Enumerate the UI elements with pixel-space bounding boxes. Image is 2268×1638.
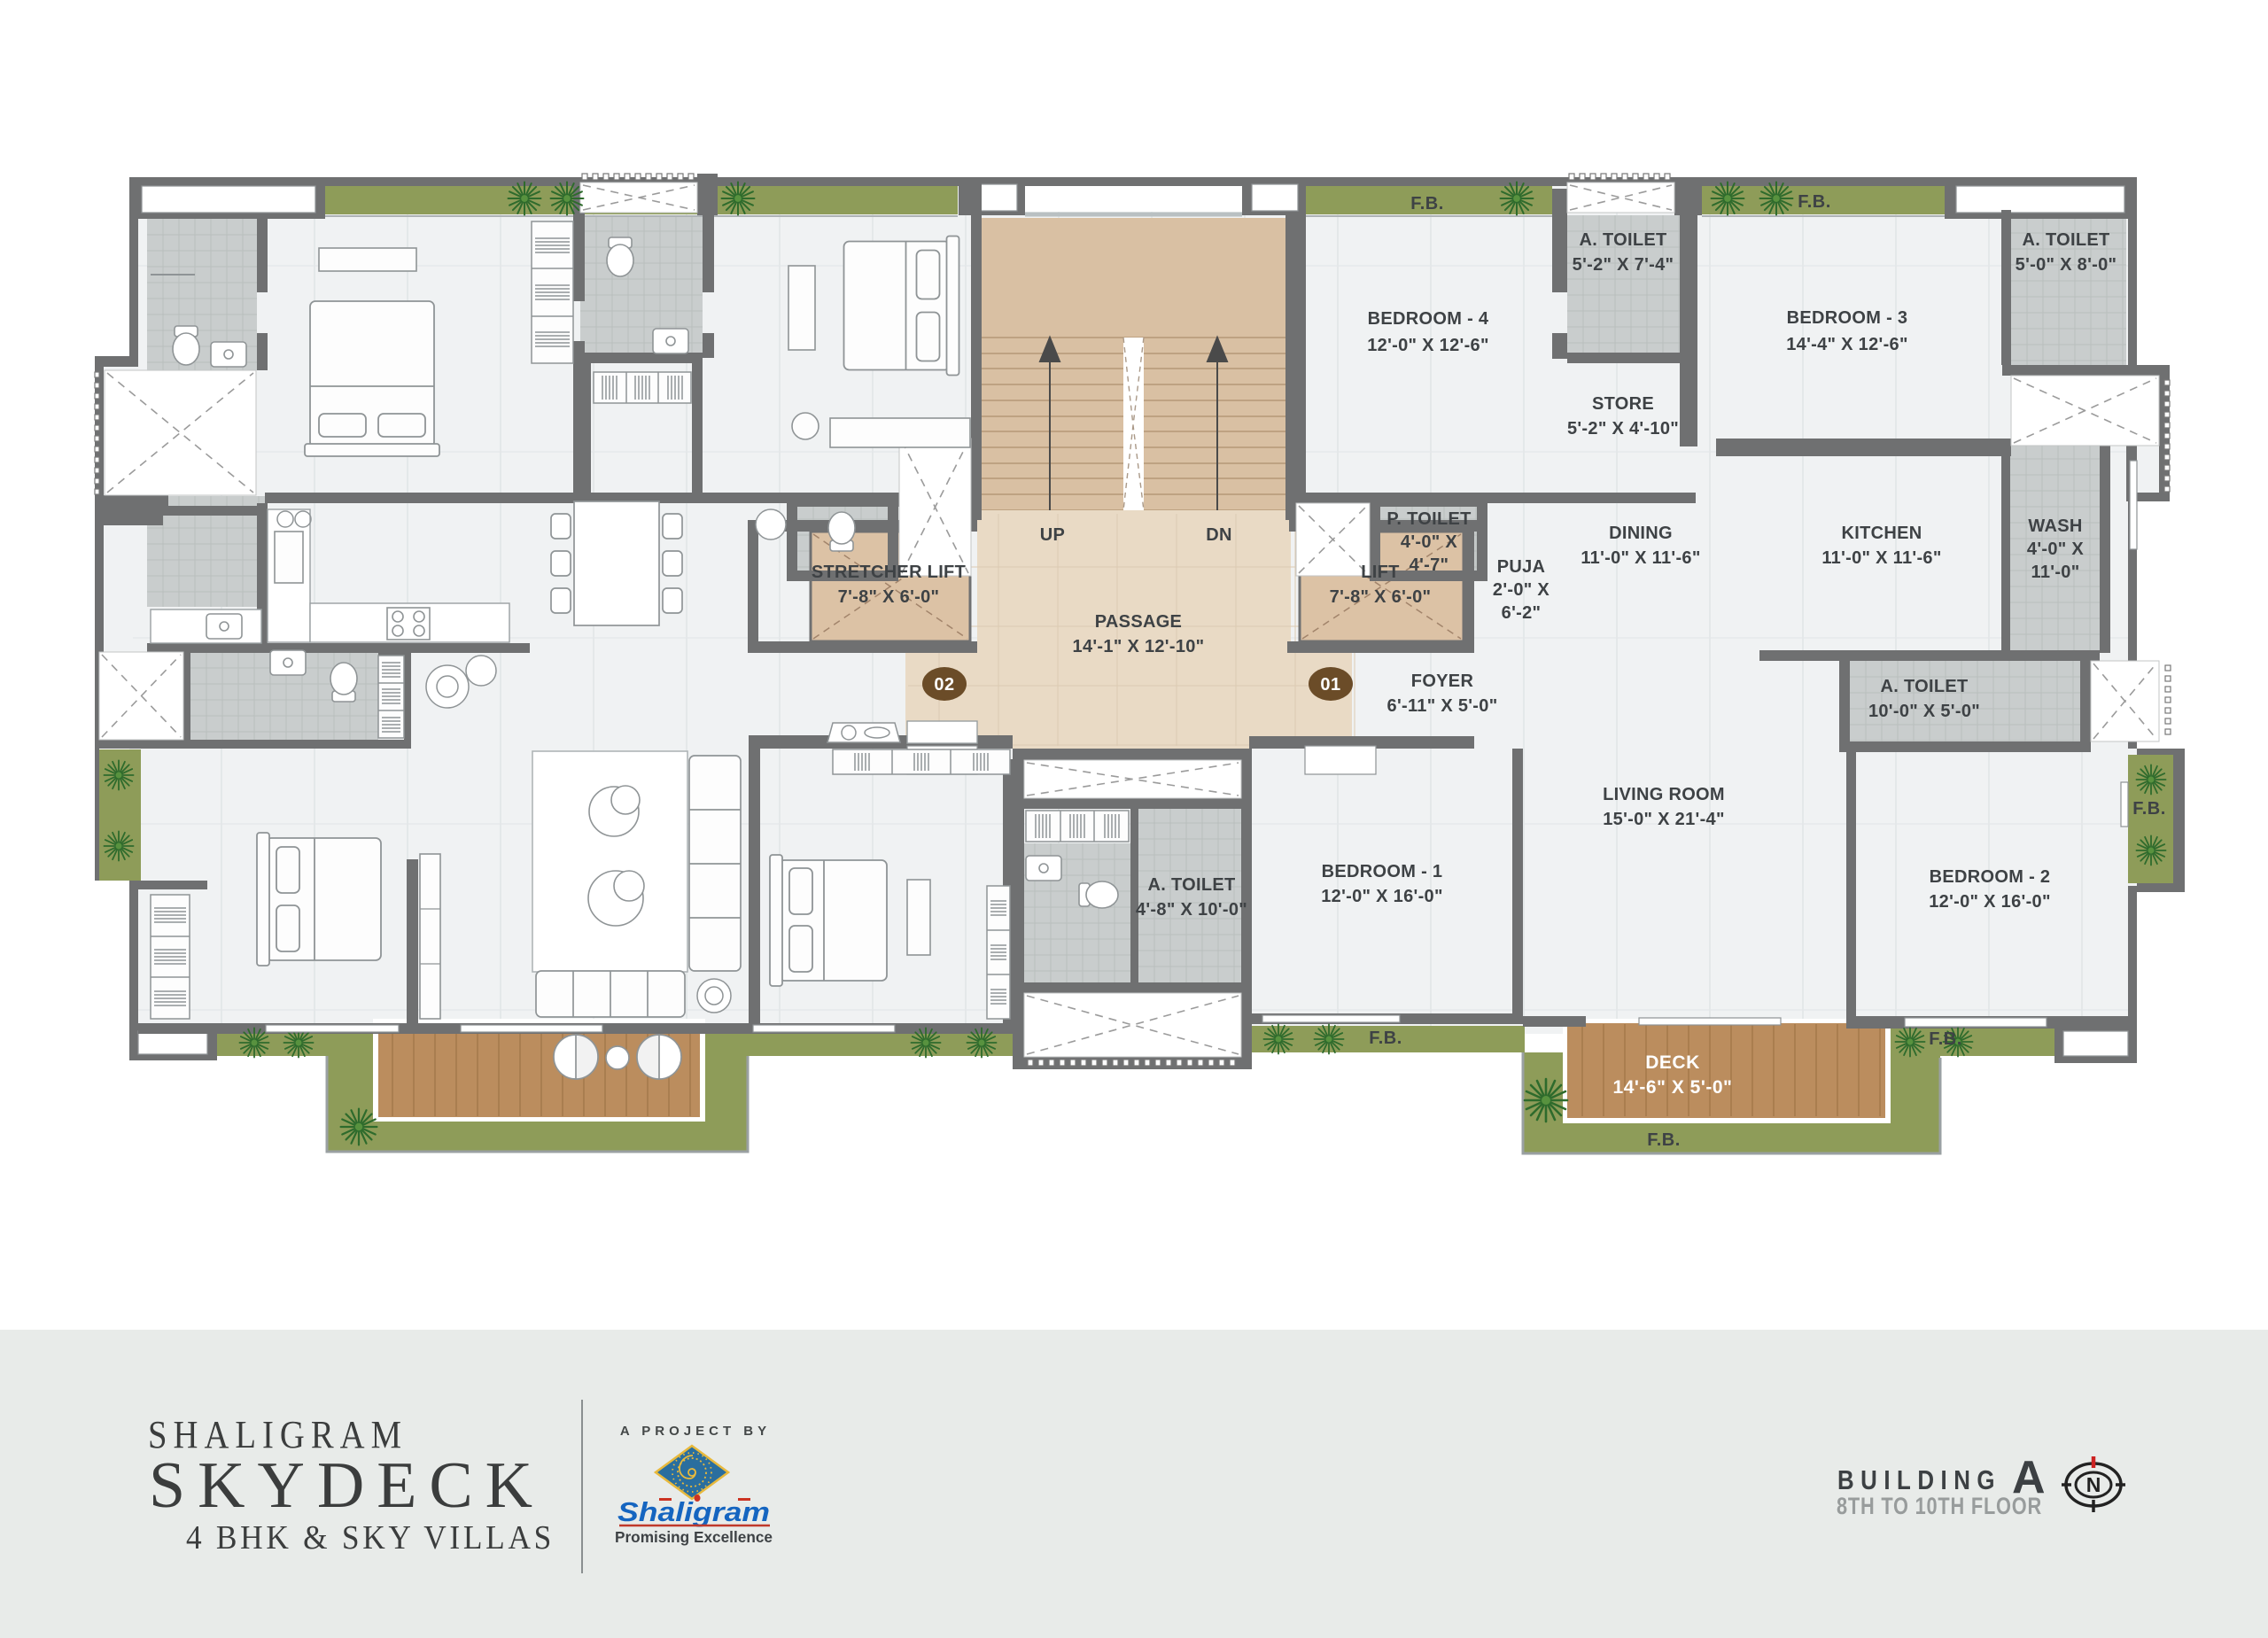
svg-text:A. TOILET: A. TOILET <box>1148 875 1236 895</box>
svg-text:PASSAGE: PASSAGE <box>1095 612 1182 632</box>
svg-text:F.B.: F.B. <box>1929 1029 1962 1049</box>
svg-text:12'-0" X 12'-6": 12'-0" X 12'-6" <box>1367 336 1489 355</box>
svg-text:2'-0" X: 2'-0" X <box>1493 580 1550 600</box>
svg-text:BEDROOM - 2: BEDROOM - 2 <box>1930 867 2051 887</box>
svg-text:A PROJECT BY: A PROJECT BY <box>620 1424 771 1439</box>
svg-text:4'-7": 4'-7" <box>1410 555 1449 575</box>
svg-text:DECK: DECK <box>1645 1052 1700 1073</box>
svg-text:12'-0" X 16'-0": 12'-0" X 16'-0" <box>1929 892 2051 912</box>
svg-text:KITCHEN: KITCHEN <box>1842 524 1922 543</box>
svg-text:LIVING ROOM: LIVING ROOM <box>1603 785 1725 804</box>
svg-text:STRETCHER LIFT: STRETCHER LIFT <box>812 563 966 582</box>
svg-text:Shaligram: Shaligram <box>617 1496 770 1527</box>
svg-text:10'-0" X 5'-0": 10'-0" X 5'-0" <box>1868 702 1980 721</box>
svg-text:LIFT: LIFT <box>1361 563 1399 582</box>
svg-text:F.B.: F.B. <box>1369 1029 1402 1048</box>
svg-text:A. TOILET: A. TOILET <box>1881 677 1969 696</box>
svg-text:PUJA: PUJA <box>1497 557 1546 577</box>
svg-text:01: 01 <box>1320 675 1340 695</box>
svg-text:A. TOILET: A. TOILET <box>1580 230 1667 250</box>
svg-text:7'-8" X 6'-0": 7'-8" X 6'-0" <box>1330 587 1432 607</box>
svg-text:A. TOILET: A. TOILET <box>2023 230 2110 250</box>
svg-text:6'-2": 6'-2" <box>1502 603 1542 623</box>
svg-text:BUILDING: BUILDING <box>1837 1464 2001 1495</box>
svg-text:11'-0" X 11'-6": 11'-0" X 11'-6" <box>1581 548 1700 568</box>
svg-text:F.B.: F.B. <box>2132 799 2166 819</box>
svg-text:14'-1" X 12'-10": 14'-1" X 12'-10" <box>1073 637 1205 656</box>
svg-text:4'-0" X: 4'-0" X <box>2027 540 2085 559</box>
svg-text:11'-0" X 11'-6": 11'-0" X 11'-6" <box>1821 548 1941 568</box>
svg-text:02: 02 <box>934 675 954 695</box>
svg-text:F.B.: F.B. <box>1410 194 1444 213</box>
svg-text:5'-2" X 7'-4": 5'-2" X 7'-4" <box>1573 255 1674 275</box>
svg-text:P. TOILET: P. TOILET <box>1386 509 1471 529</box>
svg-text:14'-6" X 5'-0": 14'-6" X 5'-0" <box>1613 1077 1733 1098</box>
svg-text:F.B.: F.B. <box>1647 1130 1681 1150</box>
svg-text:BEDROOM - 3: BEDROOM - 3 <box>1787 308 1908 328</box>
svg-text:15'-0" X 21'-4": 15'-0" X 21'-4" <box>1603 810 1725 829</box>
svg-text:F.B.: F.B. <box>1798 192 1831 212</box>
svg-text:11'-0": 11'-0" <box>2031 563 2080 582</box>
svg-text:UP: UP <box>1040 525 1065 545</box>
svg-text:SKYDECK: SKYDECK <box>149 1449 545 1522</box>
svg-text:Promising Excellence: Promising Excellence <box>615 1528 773 1546</box>
svg-text:FOYER: FOYER <box>1411 672 1474 691</box>
svg-text:12'-0" X 16'-0": 12'-0" X 16'-0" <box>1321 887 1443 906</box>
svg-text:5'-0" X 8'-0": 5'-0" X 8'-0" <box>2016 255 2117 275</box>
svg-text:DN: DN <box>1206 525 1232 545</box>
svg-text:14'-4" X 12'-6": 14'-4" X 12'-6" <box>1786 335 1908 354</box>
svg-text:4'-8" X 10'-0": 4'-8" X 10'-0" <box>1136 900 1247 920</box>
svg-text:4 BHK & SKY VILLAS: 4 BHK & SKY VILLAS <box>186 1519 555 1556</box>
svg-text:WASH: WASH <box>2028 516 2082 536</box>
svg-text:STORE: STORE <box>1592 394 1654 414</box>
svg-text:5'-2" X 4'-10": 5'-2" X 4'-10" <box>1567 419 1679 439</box>
svg-text:BEDROOM - 4: BEDROOM - 4 <box>1368 309 1489 329</box>
svg-text:BEDROOM - 1: BEDROOM - 1 <box>1322 862 1443 881</box>
svg-text:8TH TO 10TH FLOOR: 8TH TO 10TH FLOOR <box>1837 1493 2042 1519</box>
svg-text:DINING: DINING <box>1609 524 1673 543</box>
svg-text:7'-8" X 6'-0": 7'-8" X 6'-0" <box>838 587 940 607</box>
svg-text:4'-0" X: 4'-0" X <box>1401 532 1458 552</box>
svg-text:N: N <box>2086 1473 2101 1496</box>
svg-text:6'-11" X 5'-0": 6'-11" X 5'-0" <box>1387 696 1498 716</box>
